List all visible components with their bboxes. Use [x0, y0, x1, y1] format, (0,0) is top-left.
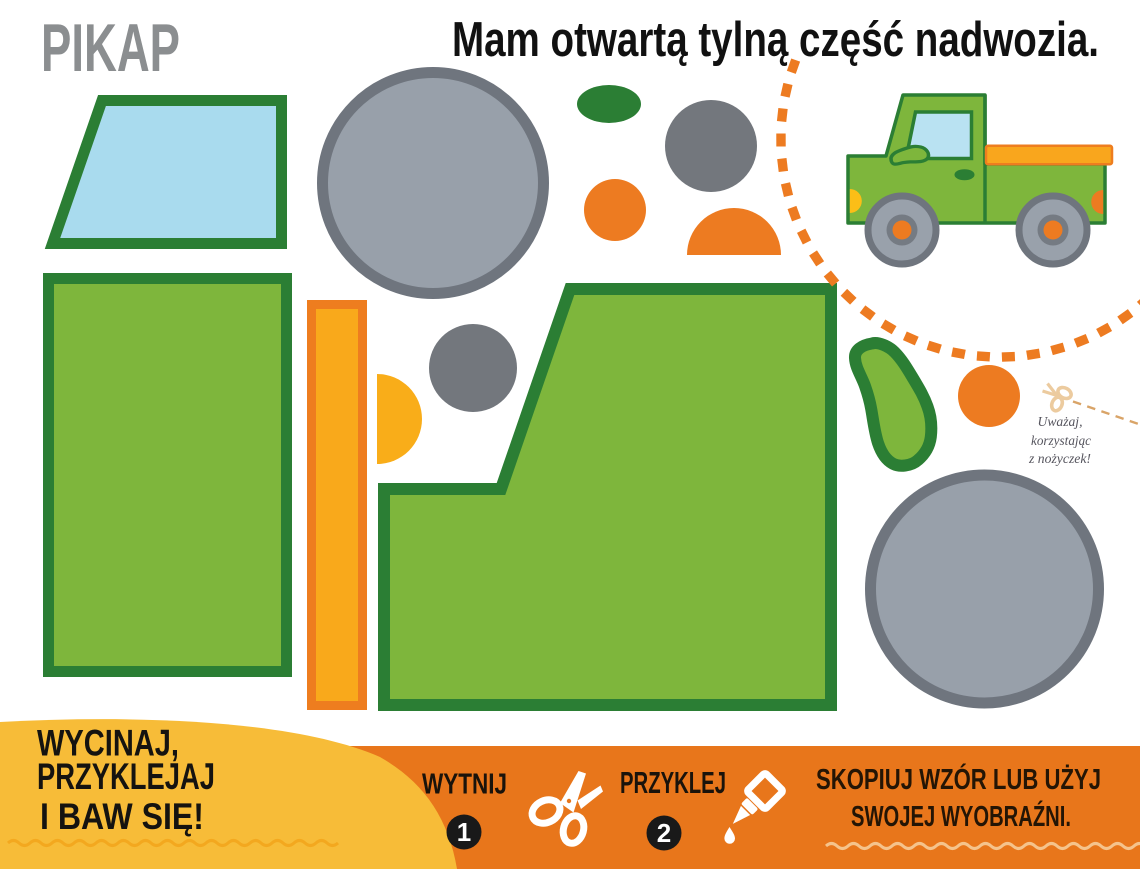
svg-text:SKOPIUJ WZÓR LUB UŻYJ: SKOPIUJ WZÓR LUB UŻYJ — [816, 762, 1101, 796]
svg-text:z nożyczek!: z nożyczek! — [1028, 452, 1091, 467]
svg-text:I BAW SIĘ!: I BAW SIĘ! — [40, 796, 204, 837]
svg-text:Uważaj,: Uważaj, — [1038, 415, 1083, 430]
svg-text:SWOJEJ WYOBRAŹNI.: SWOJEJ WYOBRAŹNI. — [851, 799, 1071, 833]
svg-text:PRZYKLEJAJ: PRZYKLEJAJ — [37, 756, 215, 797]
svg-text:1: 1 — [457, 817, 471, 847]
svg-text:PIKAP: PIKAP — [41, 10, 180, 86]
svg-text:Mam otwartą tylną część nadwoz: Mam otwartą tylną część nadwozia. — [452, 13, 1099, 67]
svg-text:PRZYKLEJ: PRZYKLEJ — [620, 765, 726, 800]
svg-text:WYTNIJ: WYTNIJ — [422, 769, 507, 801]
svg-text:2: 2 — [657, 818, 671, 848]
svg-text:korzystając: korzystając — [1031, 434, 1092, 449]
